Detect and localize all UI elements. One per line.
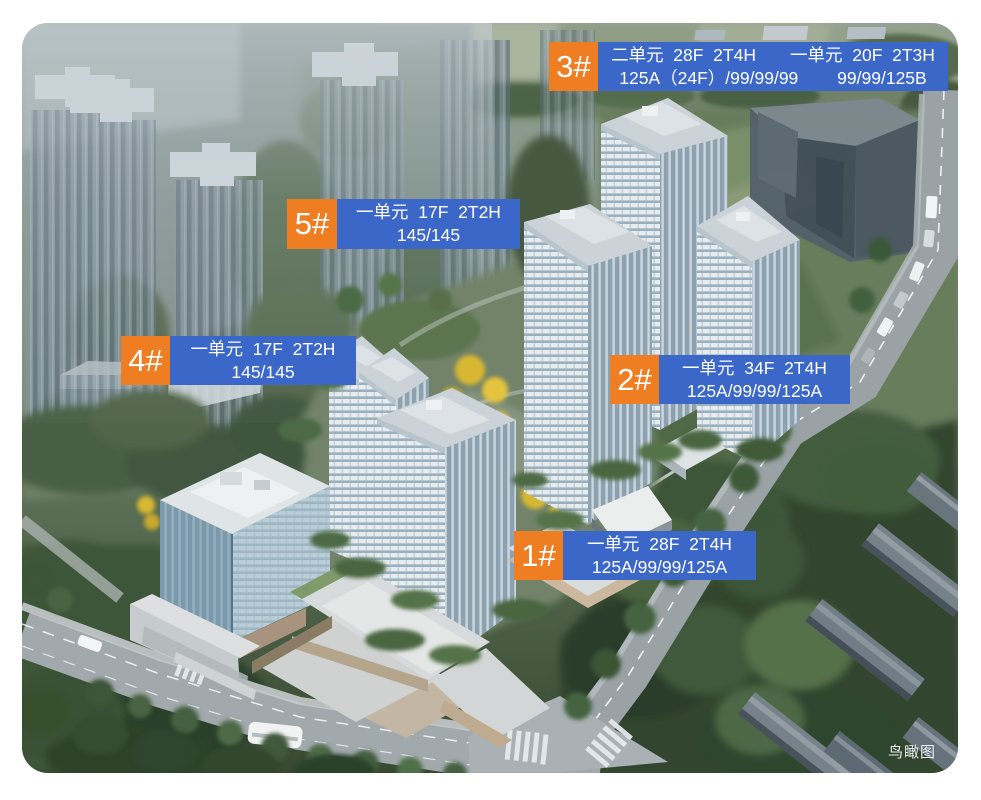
svg-text:鸟瞰图: 鸟瞰图	[888, 744, 936, 761]
